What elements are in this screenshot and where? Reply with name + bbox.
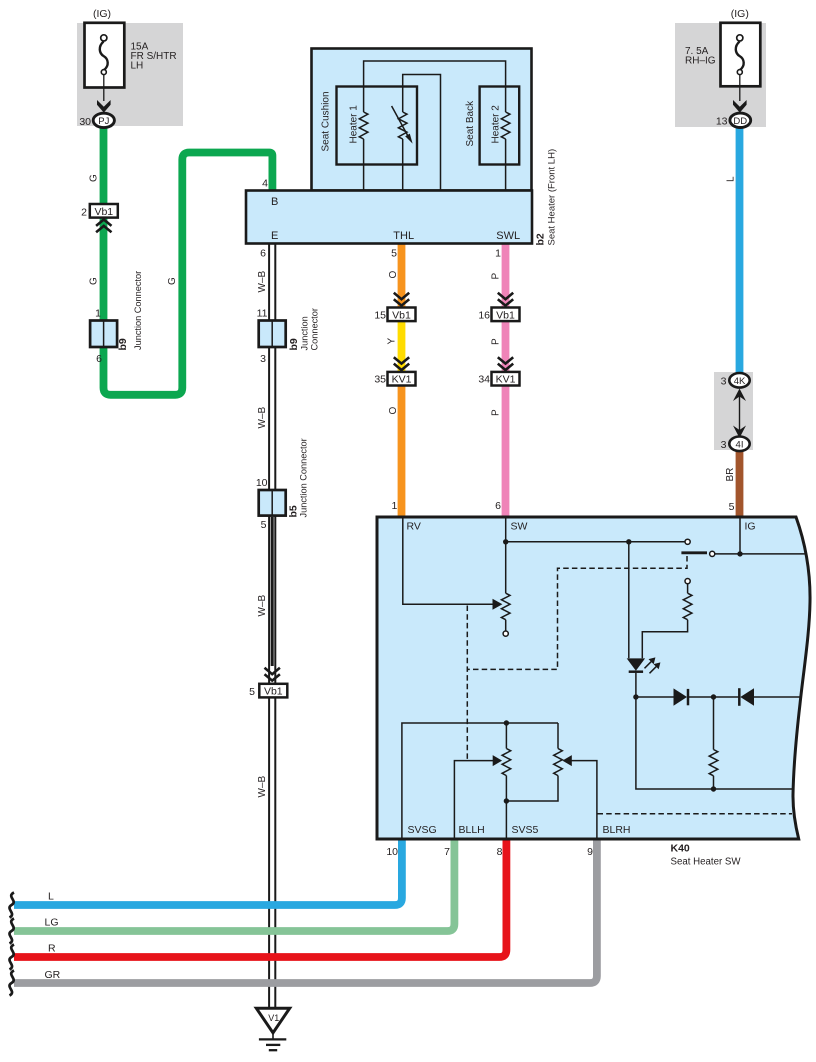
svg-text:Vb1: Vb1 — [496, 309, 515, 321]
svg-text:30: 30 — [79, 116, 91, 128]
svg-text:BR: BR — [725, 468, 736, 482]
svg-text:THL: THL — [393, 230, 414, 242]
svg-text:9: 9 — [587, 846, 593, 858]
svg-text:P: P — [491, 409, 502, 416]
svg-text:Y: Y — [387, 338, 398, 345]
svg-text:E: E — [271, 230, 278, 242]
svg-text:(IG): (IG) — [731, 8, 749, 20]
svg-text:3: 3 — [260, 353, 266, 365]
svg-text:3: 3 — [721, 439, 727, 451]
svg-text:KV1: KV1 — [496, 374, 516, 386]
svg-text:Heater 1: Heater 1 — [349, 105, 360, 144]
svg-text:Seat Heater SW: Seat Heater SW — [671, 857, 742, 868]
svg-text:SVS5: SVS5 — [512, 824, 539, 836]
svg-text:RV: RV — [407, 521, 421, 533]
svg-text:KV1: KV1 — [392, 374, 412, 386]
svg-text:SWL: SWL — [496, 230, 520, 242]
svg-text:4K: 4K — [734, 376, 746, 387]
svg-text:4I: 4I — [736, 440, 744, 451]
svg-text:B: B — [271, 196, 278, 208]
svg-text:GR: GR — [45, 969, 61, 981]
svg-text:b2: b2 — [535, 233, 547, 245]
svg-text:Connector: Connector — [310, 308, 320, 350]
svg-text:V1: V1 — [268, 1013, 279, 1023]
svg-text:(IG): (IG) — [93, 8, 111, 20]
svg-text:7: 7 — [444, 846, 450, 858]
svg-text:5: 5 — [729, 501, 735, 513]
svg-text:3: 3 — [721, 375, 727, 387]
svg-text:34: 34 — [478, 374, 490, 386]
svg-text:G: G — [89, 174, 100, 182]
svg-text:5: 5 — [249, 686, 255, 698]
svg-text:L: L — [48, 890, 54, 902]
svg-text:K40: K40 — [671, 843, 690, 855]
svg-text:L: L — [726, 176, 737, 182]
svg-text:DD: DD — [733, 116, 747, 127]
svg-text:b9: b9 — [117, 338, 129, 350]
svg-text:6: 6 — [96, 353, 102, 365]
svg-text:LH: LH — [131, 61, 144, 72]
svg-text:10: 10 — [386, 846, 398, 858]
svg-text:BLLH: BLLH — [459, 824, 485, 836]
svg-text:Vb1: Vb1 — [392, 309, 411, 321]
svg-text:W–B: W–B — [257, 595, 268, 617]
svg-text:13: 13 — [716, 116, 728, 128]
svg-text:4: 4 — [262, 178, 268, 190]
svg-text:1: 1 — [495, 248, 501, 260]
svg-text:O: O — [388, 407, 399, 415]
svg-text:6: 6 — [495, 500, 501, 512]
svg-text:W–B: W–B — [257, 271, 268, 293]
svg-text:11: 11 — [257, 308, 268, 320]
svg-text:6: 6 — [260, 248, 266, 260]
svg-text:LG: LG — [45, 917, 59, 929]
svg-text:10: 10 — [256, 477, 268, 489]
svg-text:16: 16 — [478, 309, 490, 321]
svg-text:35: 35 — [374, 374, 386, 386]
svg-text:RH–IG: RH–IG — [685, 56, 716, 67]
svg-text:Junction: Junction — [300, 316, 310, 350]
svg-text:Seat Back: Seat Back — [465, 100, 476, 147]
svg-text:Junction Connector: Junction Connector — [133, 271, 143, 350]
svg-text:1: 1 — [95, 308, 101, 320]
svg-text:5: 5 — [261, 519, 267, 531]
svg-text:G: G — [167, 277, 178, 285]
svg-text:Heater 2: Heater 2 — [491, 105, 502, 144]
svg-text:IG: IG — [745, 521, 756, 533]
svg-text:8: 8 — [497, 846, 503, 858]
svg-text:P: P — [491, 338, 502, 345]
svg-text:Vb1: Vb1 — [94, 206, 113, 218]
svg-text:SVSG: SVSG — [408, 824, 437, 836]
svg-text:PJ: PJ — [98, 116, 109, 127]
svg-text:W–B: W–B — [257, 776, 268, 798]
svg-text:15: 15 — [374, 309, 386, 321]
svg-text:BLRH: BLRH — [603, 824, 631, 836]
svg-text:G: G — [89, 277, 100, 285]
svg-text:2: 2 — [81, 207, 87, 219]
svg-text:R: R — [48, 943, 56, 955]
svg-text:O: O — [388, 271, 399, 279]
svg-text:5: 5 — [391, 248, 397, 260]
svg-text:Junction Connector: Junction Connector — [299, 438, 309, 517]
svg-text:b9: b9 — [288, 338, 300, 350]
svg-text:Vb1: Vb1 — [264, 686, 283, 698]
svg-text:1: 1 — [391, 500, 397, 512]
svg-text:W–B: W–B — [257, 407, 268, 429]
svg-text:P: P — [491, 273, 502, 280]
svg-text:Seat Cushion: Seat Cushion — [321, 91, 332, 151]
svg-text:SW: SW — [511, 521, 528, 533]
svg-text:Seat Heater (Front LH): Seat Heater (Front LH) — [547, 149, 558, 246]
